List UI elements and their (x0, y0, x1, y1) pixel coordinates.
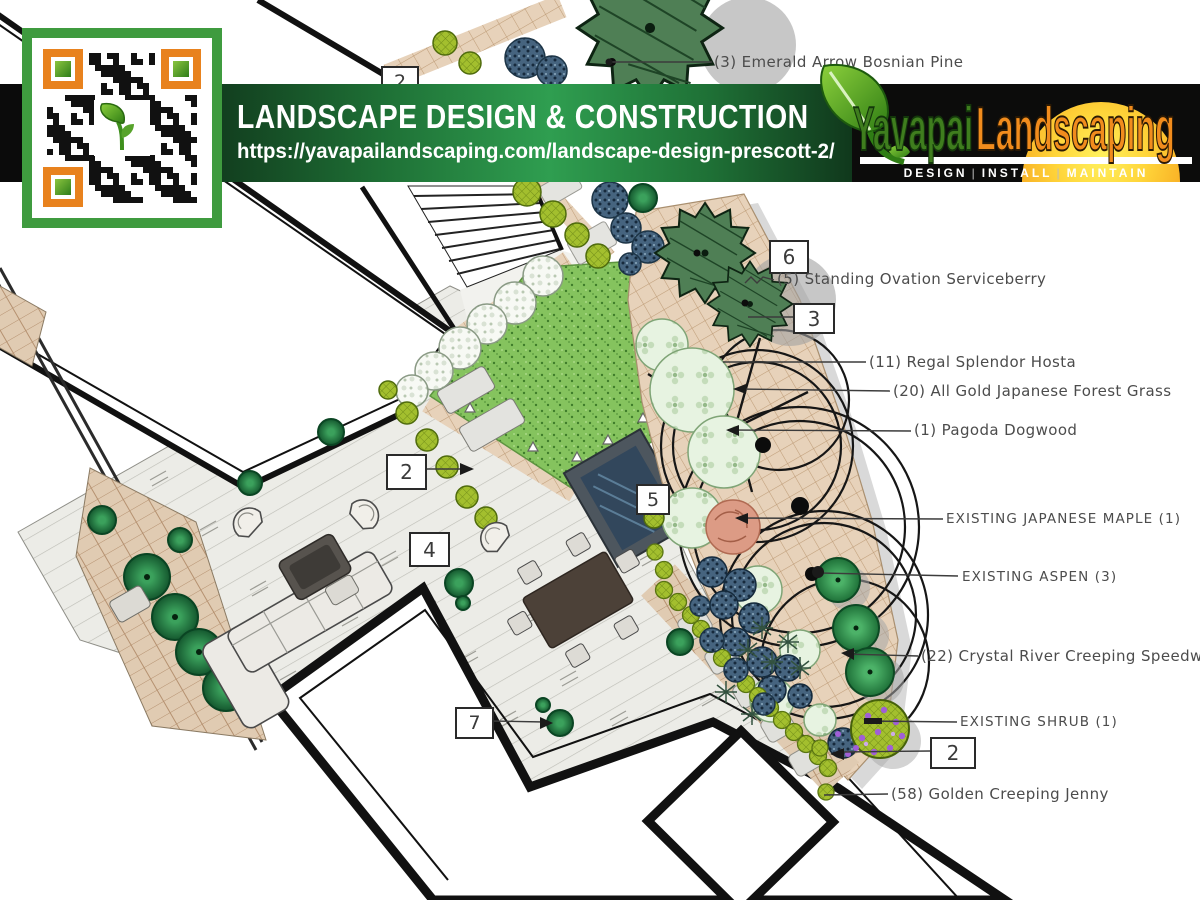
plant-label-serviceberry: (5) Standing Ovation Serviceberry (777, 270, 1046, 288)
qr-finder-topright (161, 49, 201, 89)
banner-url: https://yavapailandscaping.com/landscape… (237, 140, 835, 164)
qr-code (22, 28, 222, 228)
callout-number: 7 (468, 712, 480, 734)
qr-finder-bottomleft (43, 167, 83, 207)
qr-finder-topleft (43, 49, 83, 89)
callout-number: 3 (808, 307, 821, 331)
plant-label-forest-grass: (20) All Gold Japanese Forest Grass (893, 382, 1171, 400)
qr-modules-area (37, 43, 207, 213)
logo-wordmark-landscaping: Landscaping (976, 99, 1175, 161)
tagline-separator: | (968, 166, 982, 180)
callout-number: 5 (647, 489, 659, 511)
tagline-maintain: MAINTAIN (1067, 166, 1149, 180)
landscape-plan-screenshot: 2 6 3 2 5 4 7 2 (3) Emerald Arrow Bosnia… (0, 0, 1200, 900)
callout-number: 6 (783, 245, 796, 269)
plant-label-hosta: (11) Regal Splendor Hosta (869, 353, 1076, 371)
tagline-separator: | (1053, 166, 1067, 180)
callout-number: 2 (947, 741, 960, 765)
callout-box-4: 4 (409, 532, 450, 567)
banner-title: LANDSCAPE DESIGN & CONSTRUCTION (237, 98, 808, 136)
plant-label-existing-aspen: EXISTING ASPEN (3) (962, 569, 1117, 585)
plant-label-creeping-jenny: (58) Golden Creeping Jenny (891, 785, 1109, 803)
callout-box-3: 3 (793, 303, 835, 334)
callout-box-2-right: 2 (930, 737, 976, 769)
qr-center-sprout-icon (94, 100, 150, 156)
tagline-install: INSTALL (982, 166, 1053, 180)
callout-number: 4 (423, 538, 436, 562)
callout-box-6: 6 (769, 240, 809, 274)
logo-wordmark-yavapai: Yavapai (853, 99, 973, 161)
banner-green-segment: LANDSCAPE DESIGN & CONSTRUCTION https://… (222, 84, 852, 182)
callout-box-5: 5 (636, 484, 670, 515)
japanese-maple (706, 500, 760, 554)
plant-label-speedwell: (22) Crystal River Creeping Speedwell (921, 647, 1200, 665)
callout-number: 2 (400, 460, 413, 484)
plant-label-pagoda-dogwood: (1) Pagoda Dogwood (914, 421, 1077, 439)
plant-label-existing-maple: EXISTING JAPANESE MAPLE (1) (946, 511, 1181, 527)
callout-box-2-deck: 2 (386, 454, 427, 490)
plant-label-existing-shrub: EXISTING SHRUB (1) (960, 714, 1118, 730)
callout-box-7: 7 (455, 707, 494, 739)
